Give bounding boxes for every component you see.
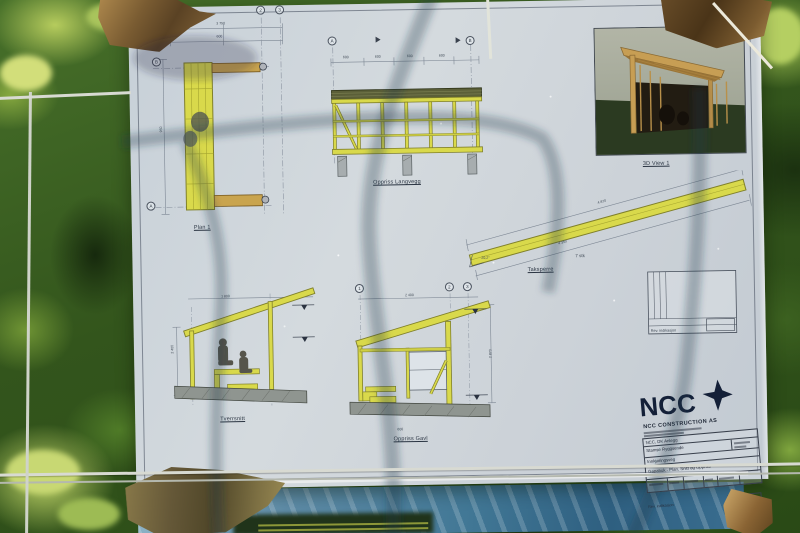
dimension-text: 2 400 [405, 293, 414, 297]
level-marker-icon [292, 305, 315, 342]
grid-bubble: 3 [275, 5, 284, 14]
section-marker-icon [456, 37, 461, 43]
leaf-highlight [0, 55, 52, 91]
grid-bubble: A [328, 36, 337, 45]
dimension-text: 1 800 [221, 294, 230, 298]
grid-bubble: B [152, 57, 161, 66]
dimension-text: 600 [216, 34, 222, 38]
project-name: Stamse Ryggsende [646, 445, 684, 453]
drawing-sheet: 2 3 B A A B 1 2 3 3 750 950 600 600 600 … [128, 0, 768, 490]
dimension-lines [331, 56, 479, 67]
front-post [630, 55, 636, 133]
revision-note: Rev. indikasjon [651, 328, 677, 332]
dimension-text: 2 870 [488, 349, 492, 358]
grid-lines [152, 17, 283, 217]
dimension-lines [158, 23, 285, 214]
ncc-logo: NCC [638, 388, 697, 424]
dimension-text: 2 400 [170, 345, 174, 354]
dimension-text: 600 [343, 55, 349, 59]
grid-bubble: 1 [355, 284, 364, 293]
dimension-text: 3 750 [216, 21, 225, 25]
plan-post [262, 196, 269, 203]
dimension-text: 600 [375, 55, 381, 59]
plan-arm-bottom [214, 195, 262, 207]
grid-bubble: A [146, 202, 155, 211]
footings [338, 154, 477, 176]
revision-note: Rev. indikasjon [648, 503, 674, 509]
grid-bubble: 2 [256, 6, 265, 15]
left-post [358, 346, 363, 401]
dimension-text: 600 [397, 427, 403, 431]
roof-beam [183, 288, 316, 337]
leaf-highlight [58, 498, 120, 530]
eave-rail [360, 347, 450, 352]
long-wall-label: Oppriss Langvegg [373, 179, 421, 186]
gable-elevation-drawing [338, 285, 501, 448]
rafter-count-text: 7 stk [575, 253, 585, 258]
dimension-text: 600 [439, 53, 445, 57]
dimension-text: 950 [159, 126, 163, 132]
plan-post [259, 63, 266, 70]
section-marker-icon [376, 37, 381, 43]
rafter-centerline [469, 184, 745, 260]
front-post [268, 302, 274, 390]
grid-bubble: B [466, 36, 475, 45]
dimension-text: 600 [407, 54, 413, 58]
rafter-label: Taksperre [528, 267, 554, 273]
grid-bubble: 2 [445, 282, 454, 291]
rafter-angle-text: 20,2° [481, 256, 489, 260]
cross-section-drawing [168, 285, 320, 428]
plan-label: Plan 1 [194, 225, 211, 231]
gable-label: Oppriss Gavl [394, 436, 428, 443]
long-wall-elevation-drawing [323, 27, 491, 180]
corner-post [708, 80, 713, 128]
bench-steps [363, 386, 396, 403]
diagonal-brace-fill [336, 105, 357, 149]
photo-of-construction-drawing: 2 3 B A A B 1 2 3 3 750 950 600 600 600 … [0, 0, 800, 533]
plan-arm-top [212, 63, 260, 73]
person-silhouette [218, 338, 253, 374]
3d-view-image [593, 25, 750, 163]
ncc-star-icon [697, 378, 734, 415]
shelter-interior [634, 81, 711, 133]
title-block-table: NCC, DK Anlegg Stamse Ryggsende Innkjøri… [642, 428, 762, 493]
rafter-beam [468, 179, 747, 266]
roof-beam [355, 301, 491, 348]
level-marker-icon [464, 309, 488, 400]
grid-bubble: 3 [463, 282, 472, 291]
cross-section-label: Tverrsnitt [220, 416, 245, 422]
3d-view-label: 3D View 1 [643, 161, 670, 167]
